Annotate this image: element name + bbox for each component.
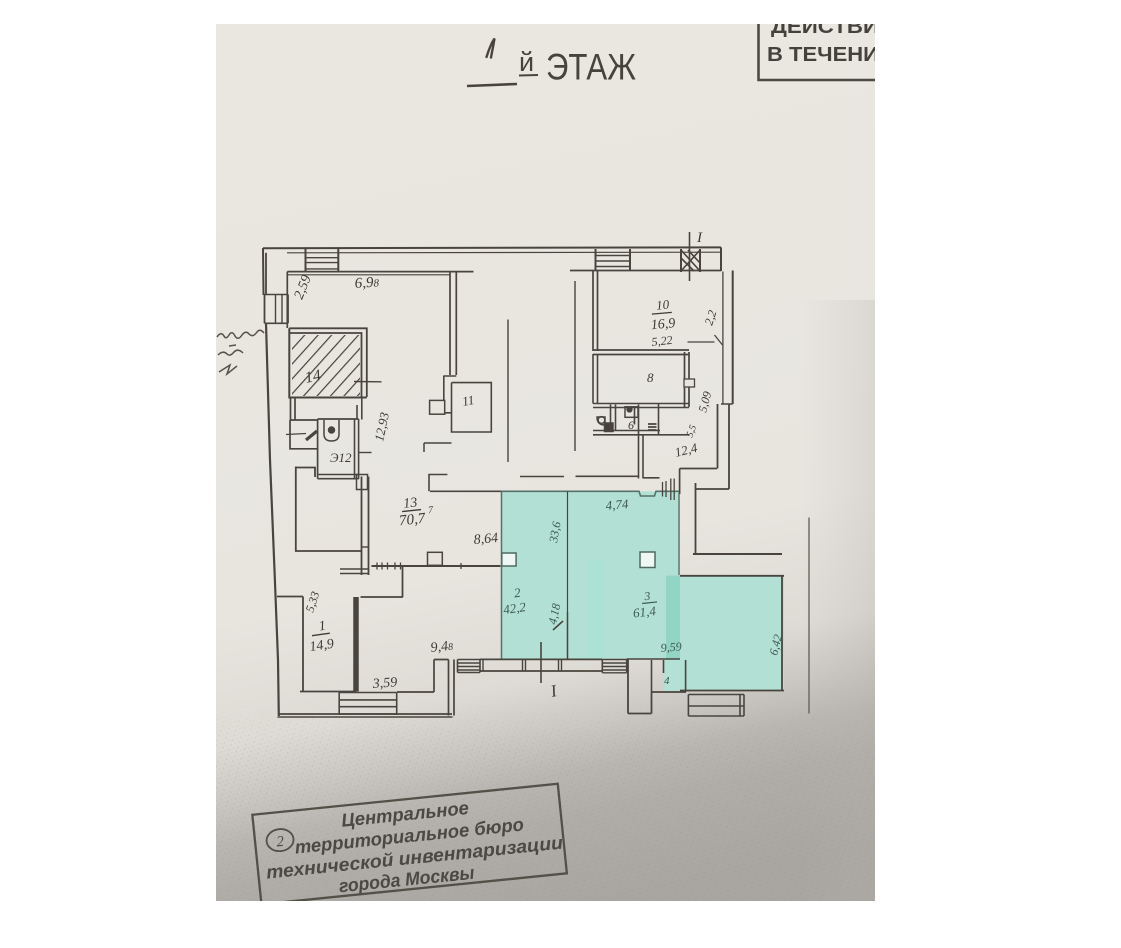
svg-text:6: 6 <box>628 418 634 432</box>
svg-text:13: 13 <box>403 495 418 511</box>
svg-text:6,98: 6,98 <box>354 274 380 292</box>
svg-text:I: I <box>696 230 703 246</box>
svg-text:й: й <box>519 47 534 77</box>
svg-text:10: 10 <box>655 297 670 313</box>
svg-text:61,4: 61,4 <box>632 603 657 620</box>
svg-text:В ТЕЧЕНИ: В ТЕЧЕНИ <box>767 44 879 66</box>
svg-text:8: 8 <box>647 370 654 385</box>
svg-text:3: 3 <box>643 589 651 604</box>
svg-text:4,74: 4,74 <box>605 496 629 513</box>
svg-text:Э12: Э12 <box>330 450 352 465</box>
svg-text:4: 4 <box>664 675 670 687</box>
svg-text:16,9: 16,9 <box>650 316 676 333</box>
svg-text:3,59: 3,59 <box>371 675 397 692</box>
svg-text:11: 11 <box>461 392 475 409</box>
svg-text:42,2: 42,2 <box>502 599 527 617</box>
svg-text:ЭТАЖ: ЭТАЖ <box>546 47 636 88</box>
svg-text:70,7: 70,7 <box>398 511 427 530</box>
svg-text:8,64: 8,64 <box>473 531 499 548</box>
svg-text:5,22: 5,22 <box>651 333 673 349</box>
svg-text:9,59: 9,59 <box>660 639 682 655</box>
